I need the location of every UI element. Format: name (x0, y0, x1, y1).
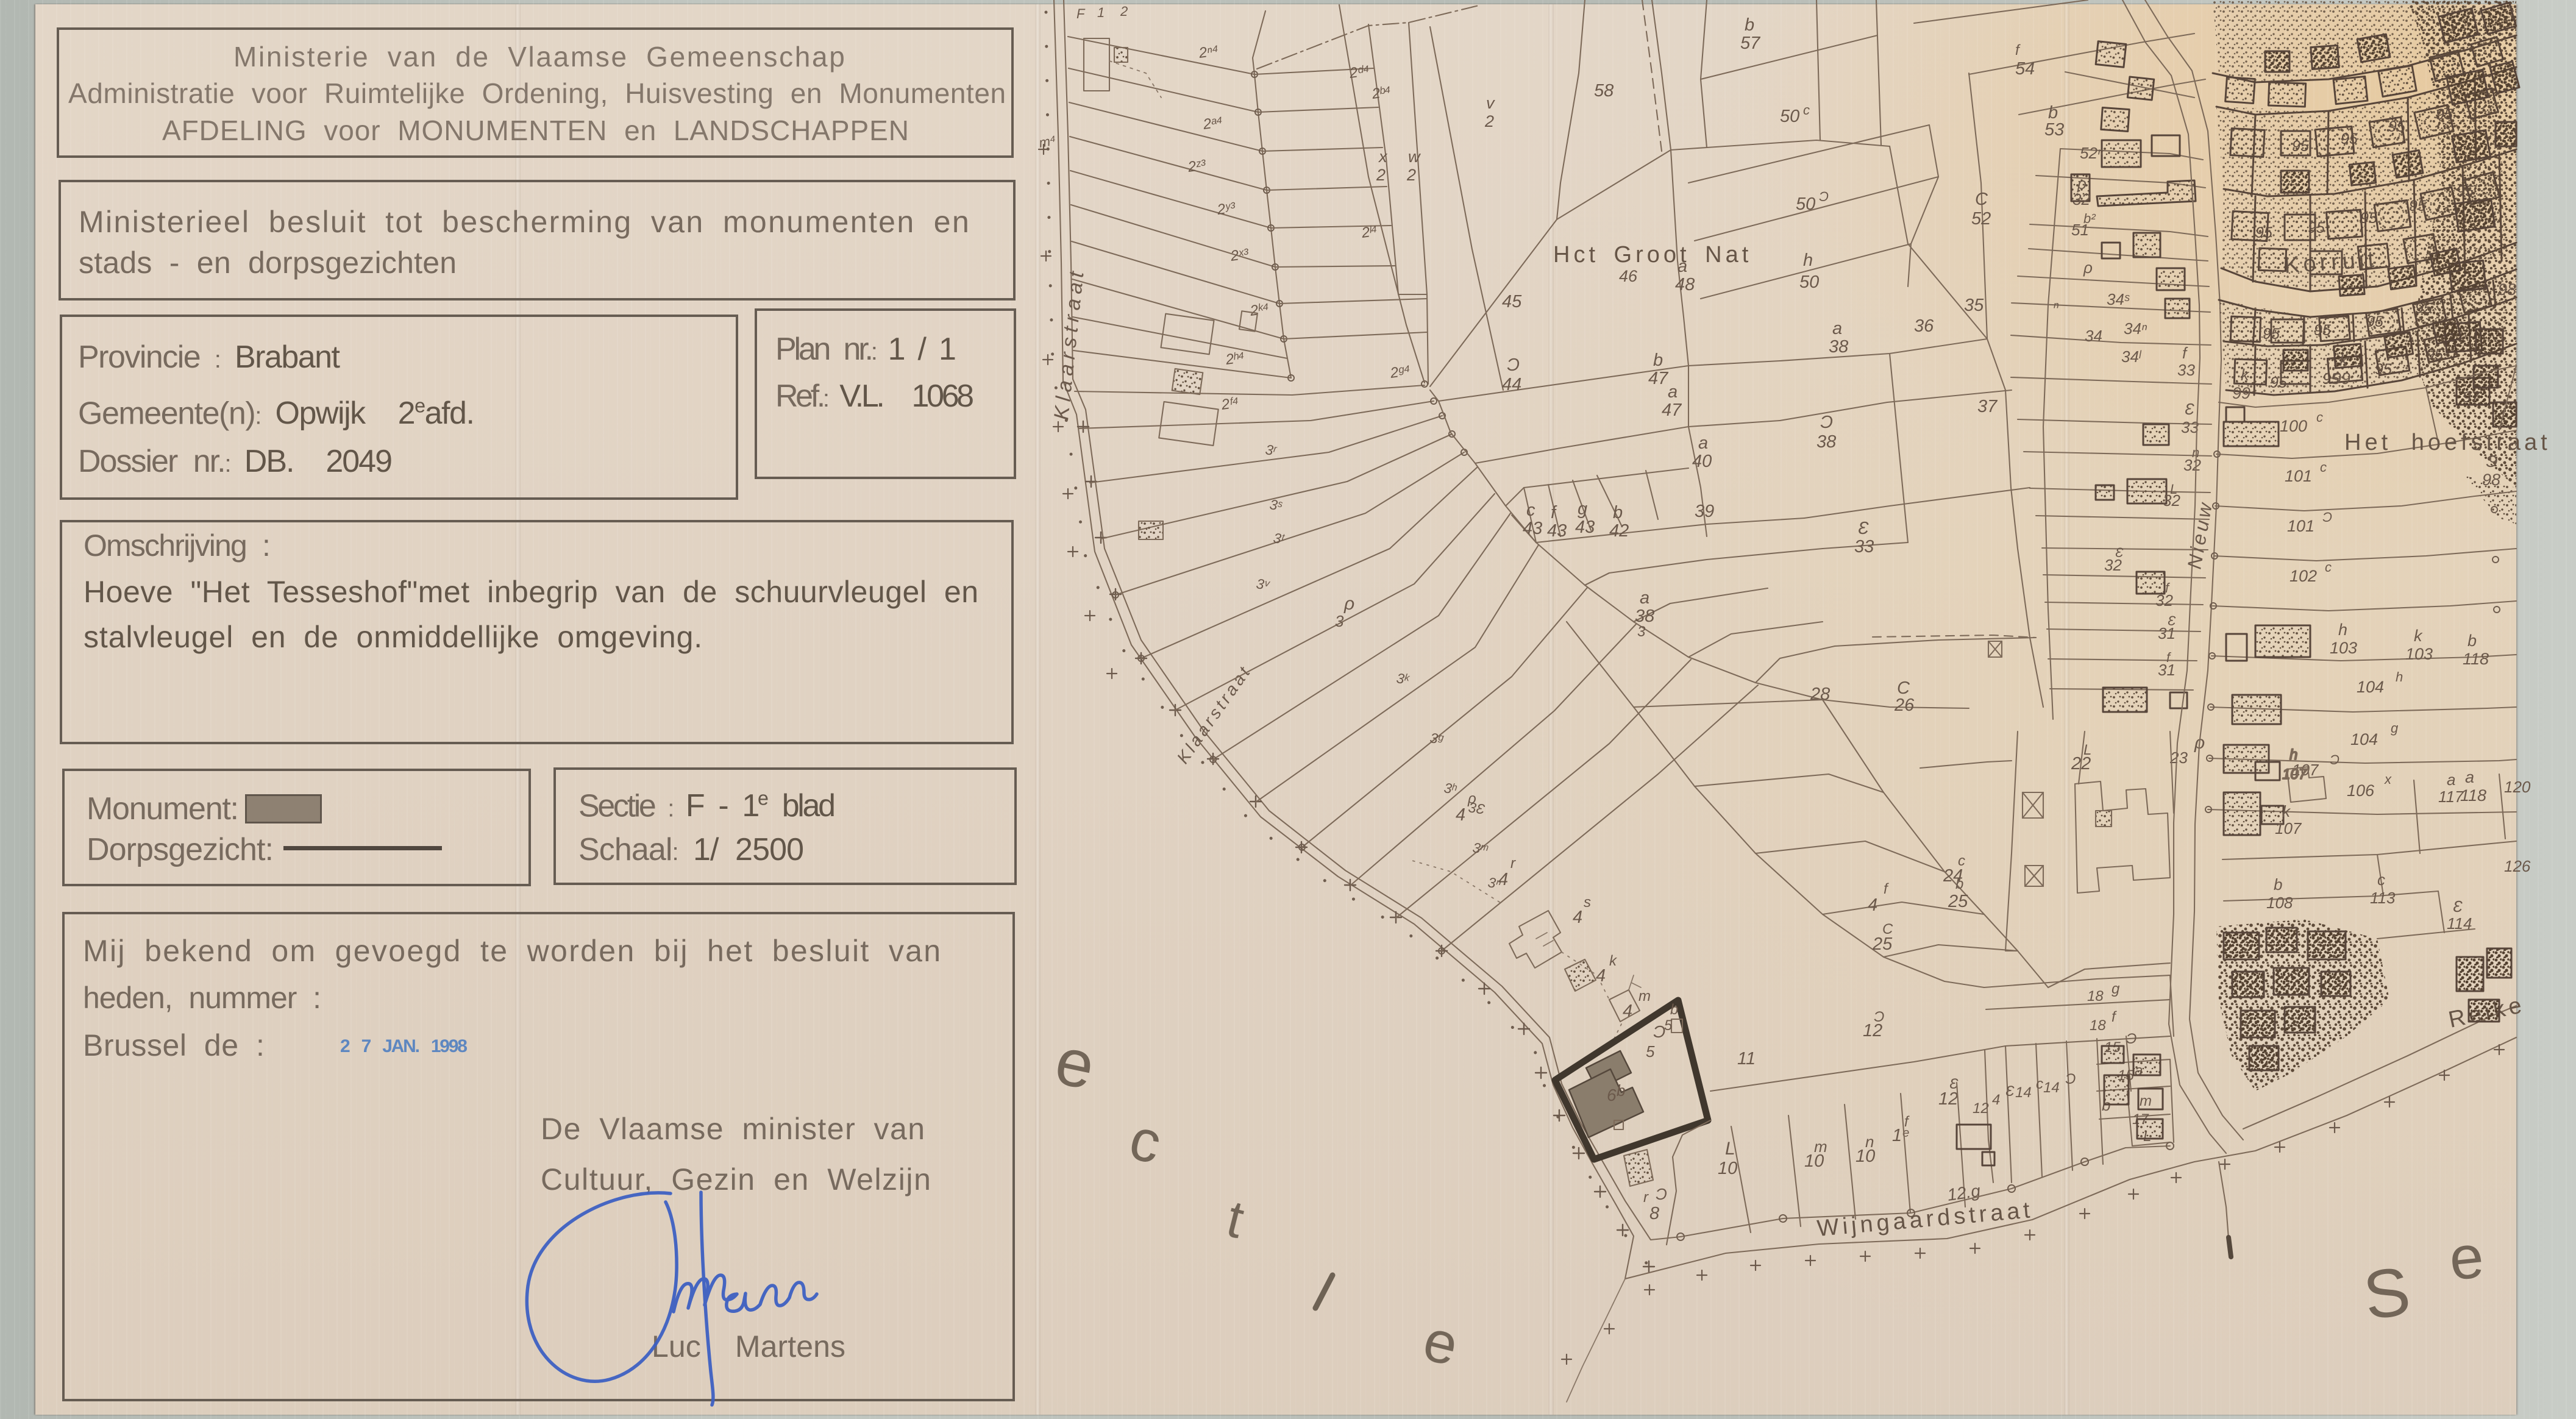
svg-text:2ʸ³: 2ʸ³ (1215, 199, 1237, 218)
svg-text:34ˡ: 34ˡ (2121, 347, 2142, 366)
svg-text:Ɔ: Ɔ (2126, 1031, 2137, 1047)
svg-text:h: h (1803, 251, 1813, 270)
svg-text:4: 4 (1992, 1092, 2000, 1108)
svg-text:25: 25 (1872, 934, 1893, 954)
svg-text:x: x (2384, 772, 2392, 787)
svg-text:99: 99 (2332, 369, 2350, 388)
svg-text:4: 4 (1596, 966, 1606, 986)
svg-text:b: b (1653, 350, 1663, 370)
svg-text:12: 12 (1973, 1100, 1989, 1117)
svg-text:Ɔ: Ɔ (1653, 1022, 1665, 1041)
svg-text:Ɛ: Ɛ (2453, 897, 2463, 916)
svg-text:8: 8 (1649, 1204, 1659, 1223)
svg-text:ρ: ρ (1467, 791, 1476, 807)
svg-text:a: a (2447, 770, 2455, 789)
svg-text:r: r (1510, 855, 1516, 872)
svg-text:2ˡ⁴: 2ˡ⁴ (1360, 223, 1378, 241)
svg-text:g: g (2391, 720, 2399, 736)
svg-text:a: a (1698, 433, 1708, 453)
svg-text:s: s (1584, 894, 1591, 911)
svg-text:Wijngaardstraat: Wijngaardstraat (1816, 1197, 2034, 1242)
svg-text:b²: b² (2083, 211, 2096, 226)
svg-text:95: 95 (2263, 325, 2280, 343)
svg-text:2: 2 (1376, 166, 1386, 184)
svg-text:95: 95 (2270, 374, 2287, 391)
svg-text:42: 42 (1609, 521, 1629, 541)
svg-text:2: 2 (1484, 112, 1494, 130)
svg-text:c: c (1803, 102, 1810, 118)
svg-text:118: 118 (2460, 786, 2486, 805)
svg-text:Hct Groot Nat: Hct Groot Nat (1553, 242, 1752, 268)
svg-text:a: a (1640, 588, 1649, 608)
svg-text:101: 101 (2287, 517, 2314, 535)
svg-text:95: 95 (2292, 138, 2309, 155)
svg-text:Ɔ: Ɔ (2065, 1071, 2076, 1087)
svg-text:2ᶠ⁴: 2ᶠ⁴ (1220, 394, 1240, 413)
svg-text:ρ: ρ (1343, 594, 1354, 614)
svg-text:c: c (2316, 410, 2323, 425)
svg-text:g: g (2112, 981, 2120, 997)
svg-text:52ⁿ: 52ⁿ (2080, 144, 2104, 162)
svg-text:2ᵈ⁴: 2ᵈ⁴ (1348, 63, 1371, 82)
svg-text:108: 108 (2266, 894, 2293, 912)
svg-text:3ˢ: 3ˢ (1268, 496, 1283, 514)
svg-text:34ⁿ: 34ⁿ (2124, 319, 2147, 338)
svg-text:95: 95 (2360, 210, 2377, 227)
svg-text:6: 6 (1607, 1086, 1617, 1104)
svg-text:b: b (2274, 875, 2282, 894)
svg-text:Ɛ: Ɛ (2185, 400, 2194, 418)
svg-text:a: a (2465, 768, 2474, 786)
svg-text:32: 32 (2073, 190, 2090, 208)
svg-text:39: 39 (1695, 502, 1714, 521)
svg-text:2ˣ³: 2ˣ³ (1229, 246, 1250, 265)
svg-text:18: 18 (2087, 988, 2104, 1005)
svg-text:120: 120 (2504, 778, 2531, 796)
svg-text:33: 33 (2177, 361, 2195, 379)
svg-text:2ᶻ³: 2ᶻ³ (1186, 157, 1208, 176)
svg-text:4: 4 (1498, 870, 1508, 889)
svg-text:50: 50 (1780, 107, 1799, 126)
svg-text:k: k (2241, 366, 2250, 384)
svg-text:23: 23 (2169, 749, 2188, 767)
svg-text:x: x (1378, 148, 1388, 166)
svg-text:Ɔ: Ɔ (1820, 413, 1833, 432)
svg-text:k: k (2414, 627, 2423, 645)
svg-text:95: 95 (2426, 346, 2443, 363)
svg-text:e: e (2446, 1222, 2487, 1293)
svg-text:b: b (1745, 15, 1754, 35)
svg-text:106: 106 (2347, 781, 2375, 800)
svg-text:98: 98 (2482, 471, 2500, 489)
svg-text:4: 4 (1868, 895, 1877, 915)
svg-text:L: L (2170, 482, 2177, 497)
svg-text:h: h (2338, 621, 2347, 639)
svg-text:118: 118 (2463, 650, 2489, 668)
svg-text:52: 52 (1971, 209, 1991, 229)
svg-text:h: h (2396, 669, 2403, 685)
svg-text:12: 12 (1863, 1021, 1882, 1040)
svg-text:11: 11 (1737, 1049, 1756, 1069)
svg-text:10: 10 (1718, 1159, 1737, 1178)
svg-text:e: e (1049, 1023, 1101, 1104)
svg-text:c: c (2036, 1076, 2043, 1092)
svg-text:28: 28 (1810, 685, 1830, 704)
svg-text:h: h (2290, 747, 2297, 763)
svg-text:r: r (1643, 1189, 1649, 1206)
svg-text:10: 10 (1856, 1147, 1875, 1166)
svg-text:S: S (2359, 1253, 2414, 1334)
svg-text:a: a (1678, 257, 1687, 276)
svg-text:5: 5 (1646, 1042, 1655, 1061)
svg-text:2ᵍ⁴: 2ᵍ⁴ (1389, 363, 1412, 382)
svg-text:e: e (1417, 1307, 1465, 1379)
svg-text:53: 53 (2044, 120, 2064, 140)
svg-text:b: b (1613, 503, 1623, 522)
svg-text:m: m (1638, 988, 1651, 1005)
svg-text:Ɔ: Ɔ (1656, 1185, 1667, 1203)
svg-text:12.g: 12.g (1946, 1181, 1982, 1204)
svg-text:95: 95 (2341, 130, 2358, 148)
svg-text:45: 45 (1502, 292, 1522, 311)
svg-text:34: 34 (2085, 327, 2102, 345)
svg-text:Ɛ: Ɛ (2115, 545, 2124, 560)
svg-text:107: 107 (2275, 819, 2302, 838)
svg-text:3ᵛ: 3ᵛ (1255, 575, 1271, 593)
svg-text:Ɔ: Ɔ (2330, 752, 2339, 767)
svg-text:57: 57 (1740, 34, 1761, 53)
svg-text:95: 95 (2255, 224, 2272, 241)
svg-text:36: 36 (1914, 316, 1934, 336)
svg-text:k: k (2282, 802, 2291, 820)
svg-text:48: 48 (1675, 275, 1695, 294)
svg-text:95: 95 (2314, 322, 2331, 339)
svg-text:m: m (2140, 1093, 2152, 1109)
svg-text:2ᵏ⁴: 2ᵏ⁴ (1248, 301, 1270, 319)
svg-text:97: 97 (2463, 389, 2480, 406)
svg-text:w: w (1408, 148, 1421, 166)
svg-text:104: 104 (2350, 730, 2378, 749)
svg-text:Ɔ: Ɔ (1507, 355, 1520, 375)
svg-text:3: 3 (1335, 612, 1344, 630)
svg-text:v: v (1486, 94, 1495, 112)
svg-text:2ᵇ⁴: 2ᵇ⁴ (1370, 84, 1392, 102)
svg-text:f: f (2015, 42, 2021, 59)
svg-text:3ʳ: 3ʳ (1264, 441, 1278, 458)
svg-text:107: 107 (2282, 766, 2308, 783)
svg-text:14: 14 (2043, 1079, 2060, 1096)
svg-text:126: 126 (2504, 857, 2531, 875)
svg-text:2ᵃ⁴: 2ᵃ⁴ (1201, 114, 1224, 133)
svg-text:3ᵏ: 3ᵏ (1395, 670, 1411, 688)
svg-text:3ᵗ: 3ᵗ (1272, 530, 1286, 547)
svg-text:54: 54 (2015, 59, 2035, 79)
svg-text:a: a (1832, 319, 1842, 338)
svg-text:t: t (1221, 1189, 1250, 1250)
svg-text:Het hoefstraat: Het hoefstraat (2344, 430, 2551, 455)
svg-text:b: b (1670, 1001, 1678, 1018)
svg-text:44: 44 (1502, 375, 1521, 394)
svg-text:k: k (2339, 351, 2349, 369)
svg-text:58: 58 (1594, 81, 1614, 101)
svg-text:3ᵐ: 3ᵐ (1471, 839, 1489, 857)
svg-text:95: 95 (2436, 106, 2453, 123)
svg-text:95: 95 (2375, 361, 2392, 378)
svg-text:99: 99 (2232, 384, 2250, 402)
svg-text:2: 2 (1120, 4, 1128, 19)
svg-text:95: 95 (2415, 300, 2432, 317)
svg-text:c: c (2377, 870, 2385, 889)
svg-text:1: 1 (1097, 5, 1105, 20)
svg-text:b: b (2467, 631, 2477, 650)
svg-text:38: 38 (1829, 337, 1848, 357)
svg-text:2: 2 (1406, 166, 1416, 184)
svg-text:43: 43 (1575, 517, 1595, 537)
svg-text:46: 46 (1619, 267, 1638, 285)
svg-text:Ɛ: Ɛ (2005, 1083, 2015, 1100)
svg-text:37: 37 (1977, 397, 1998, 416)
svg-text:f: f (2112, 1009, 2117, 1025)
svg-text:101: 101 (2285, 467, 2312, 485)
svg-text:102: 102 (2290, 567, 2317, 585)
svg-text:c: c (1526, 500, 1535, 520)
svg-text:2ⁿ⁴: 2ⁿ⁴ (1197, 43, 1220, 62)
svg-text:95: 95 (2409, 197, 2426, 215)
svg-text:103: 103 (2405, 645, 2433, 663)
svg-text:104: 104 (2357, 678, 2384, 696)
svg-text:26: 26 (1894, 695, 1915, 715)
svg-text:c: c (2320, 460, 2327, 475)
svg-text:95: 95 (2308, 219, 2325, 237)
svg-text:b: b (1617, 1081, 1625, 1100)
svg-text:g: g (1578, 499, 1587, 519)
svg-text:f: f (1884, 881, 1889, 897)
svg-text:114: 114 (2447, 914, 2472, 933)
svg-text:100: 100 (2280, 417, 2307, 435)
svg-text:c: c (1123, 1106, 1167, 1176)
svg-text:32: 32 (2155, 591, 2173, 610)
svg-text:4: 4 (1456, 805, 1465, 825)
svg-text:95: 95 (2457, 183, 2474, 200)
svg-text:ⁿ: ⁿ (2053, 297, 2059, 316)
svg-text:35: 35 (1964, 296, 1984, 315)
svg-text:Ɔ: Ɔ (2322, 510, 2332, 525)
svg-text:c: c (2325, 560, 2332, 575)
svg-text:117: 117 (2438, 788, 2464, 806)
svg-text:Ɛ: Ɛ (2168, 613, 2176, 628)
svg-text:3ᵍ: 3ᵍ (1429, 730, 1445, 747)
svg-text:95: 95 (2366, 313, 2383, 330)
svg-text:C: C (1975, 190, 1988, 209)
svg-text:38: 38 (1816, 432, 1836, 452)
svg-text:Nieuw: Nieuw (2183, 499, 2216, 571)
svg-text:4: 4 (1573, 908, 1582, 927)
svg-text:2ʰ⁴: 2ʰ⁴ (1224, 349, 1246, 368)
svg-text:95: 95 (2388, 118, 2405, 135)
svg-text:1ᵉ: 1ᵉ (1892, 1126, 1909, 1145)
svg-text:47: 47 (1648, 369, 1669, 388)
svg-text:113: 113 (2370, 889, 2396, 907)
svg-text:33: 33 (1854, 537, 1874, 557)
svg-text:F: F (1076, 6, 1086, 21)
svg-text:Klaarstraat: Klaarstraat (1173, 661, 1256, 767)
svg-text:103: 103 (2330, 639, 2357, 657)
svg-text:34ˢ: 34ˢ (2107, 290, 2130, 308)
svg-text:98: 98 (2498, 280, 2516, 299)
svg-text:k: k (1609, 953, 1618, 969)
svg-text:40: 40 (1692, 452, 1712, 471)
svg-text:a: a (1668, 382, 1678, 402)
svg-text:ρ: ρ (2083, 258, 2093, 277)
svg-text:50: 50 (1799, 272, 1819, 292)
svg-text:43: 43 (1547, 521, 1567, 541)
svg-text:24: 24 (1943, 866, 1963, 886)
svg-text:Ɛ: Ɛ (1858, 519, 1869, 538)
svg-text:10: 10 (1804, 1151, 1824, 1171)
svg-text:Klaarstraat: Klaarstraat (1050, 266, 1089, 421)
svg-text:12: 12 (1938, 1089, 1958, 1109)
svg-text:47: 47 (1662, 400, 1682, 420)
svg-text:3: 3 (1637, 624, 1646, 640)
svg-text:25: 25 (1948, 892, 1968, 911)
svg-text:Ɔ: Ɔ (1819, 189, 1829, 204)
svg-text:f: f (2182, 344, 2188, 362)
svg-text:14: 14 (2015, 1084, 2032, 1101)
svg-text:43: 43 (1523, 519, 1542, 538)
svg-text:18: 18 (2090, 1017, 2106, 1034)
